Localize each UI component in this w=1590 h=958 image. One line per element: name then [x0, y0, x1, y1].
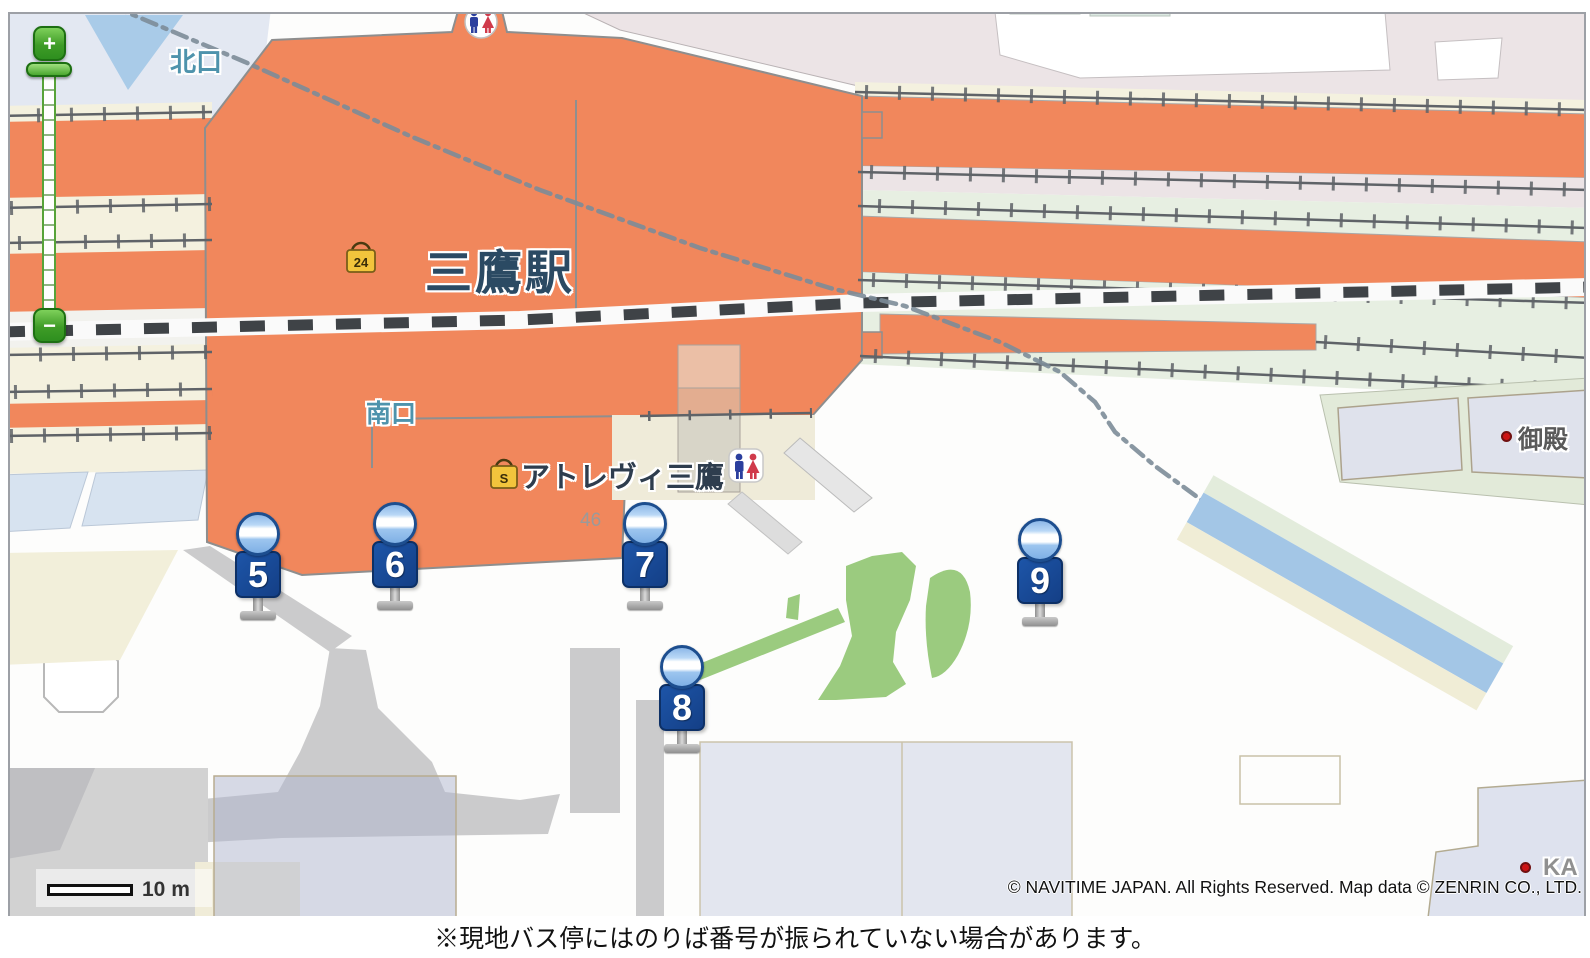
bus-stop-pole: [640, 588, 650, 601]
bus-stop-base: [1022, 617, 1058, 626]
bus-stop-marker-8[interactable]: 8: [659, 645, 705, 753]
scale-bar: 10 m: [36, 869, 212, 907]
park-areas: [694, 552, 971, 700]
svg-text:24: 24: [354, 255, 369, 270]
zoom-out-button[interactable]: −: [33, 308, 66, 343]
bus-stop-number-plate: 6: [372, 541, 418, 588]
bus-stop-number: 5: [248, 557, 268, 593]
bus-stop-sign-icon: [1018, 518, 1062, 562]
bus-stop-marker-5[interactable]: 5: [235, 512, 281, 620]
caption-bar: ※現地バス停にはのりば番号が振られていない場合があります。: [0, 916, 1590, 958]
bus-stop-sign-icon: [373, 502, 417, 546]
bus-stop-number-plate: 9: [1017, 557, 1063, 604]
bus-stop-number-plate: 5: [235, 551, 281, 598]
bus-stop-sign-icon: [623, 502, 667, 546]
bus-stop-sign-icon: [236, 512, 280, 556]
zoom-in-button[interactable]: +: [33, 26, 66, 61]
bus-stop-sign-icon: [660, 645, 704, 689]
zoom-slider-handle[interactable]: [26, 62, 72, 77]
bus-stop-base: [627, 601, 663, 610]
restroom-icon-north: [465, 12, 497, 38]
poi-dot-ka: [1520, 862, 1531, 873]
bus-stop-pole: [1035, 604, 1045, 617]
poi-dot-goten: [1501, 431, 1512, 442]
svg-text:S: S: [500, 471, 509, 486]
bus-stop-number-plate: 7: [622, 541, 668, 588]
zoom-slider-track[interactable]: [42, 74, 56, 314]
bus-stop-number: 9: [1030, 563, 1050, 599]
restroom-icon-south: [729, 449, 763, 482]
bus-stop-number-plate: 8: [659, 684, 705, 731]
bus-stop-number: 6: [385, 547, 405, 583]
bus-stop-pole: [677, 731, 687, 744]
map-canvas[interactable]: 24 S 北口 三鷹駅 南口 アトレヴィ三鷹 46 御殿 KA: [8, 12, 1586, 918]
bus-stop-marker-9[interactable]: 9: [1017, 518, 1063, 626]
copyright-text: © NAVITIME JAPAN. All Rights Reserved. M…: [1008, 877, 1582, 898]
caption-text: ※現地バス停にはのりば番号が振られていない場合があります。: [434, 919, 1156, 955]
bus-stop-base: [240, 611, 276, 620]
scale-bar-rect: [47, 884, 133, 896]
page: 24 S 北口 三鷹駅 南口 アトレヴィ三鷹 46 御殿 KA: [0, 0, 1590, 958]
canal: [1177, 475, 1513, 710]
bus-stop-marker-7[interactable]: 7: [622, 502, 668, 610]
bus-stop-number: 7: [635, 547, 655, 583]
map-frame: 24 S 北口 三鷹駅 南口 アトレヴィ三鷹 46 御殿 KA: [8, 12, 1586, 918]
scale-bar-label: 10 m: [142, 878, 190, 902]
map-graphics: 24 S: [8, 12, 1586, 918]
bus-stop-number: 8: [672, 690, 692, 726]
east-buildings: [1320, 378, 1586, 505]
bus-stop-base: [377, 601, 413, 610]
bus-stop-base: [664, 744, 700, 753]
bus-stop-pole: [390, 588, 400, 601]
bus-stop-marker-6[interactable]: 6: [372, 502, 418, 610]
bus-stop-pole: [253, 598, 263, 611]
